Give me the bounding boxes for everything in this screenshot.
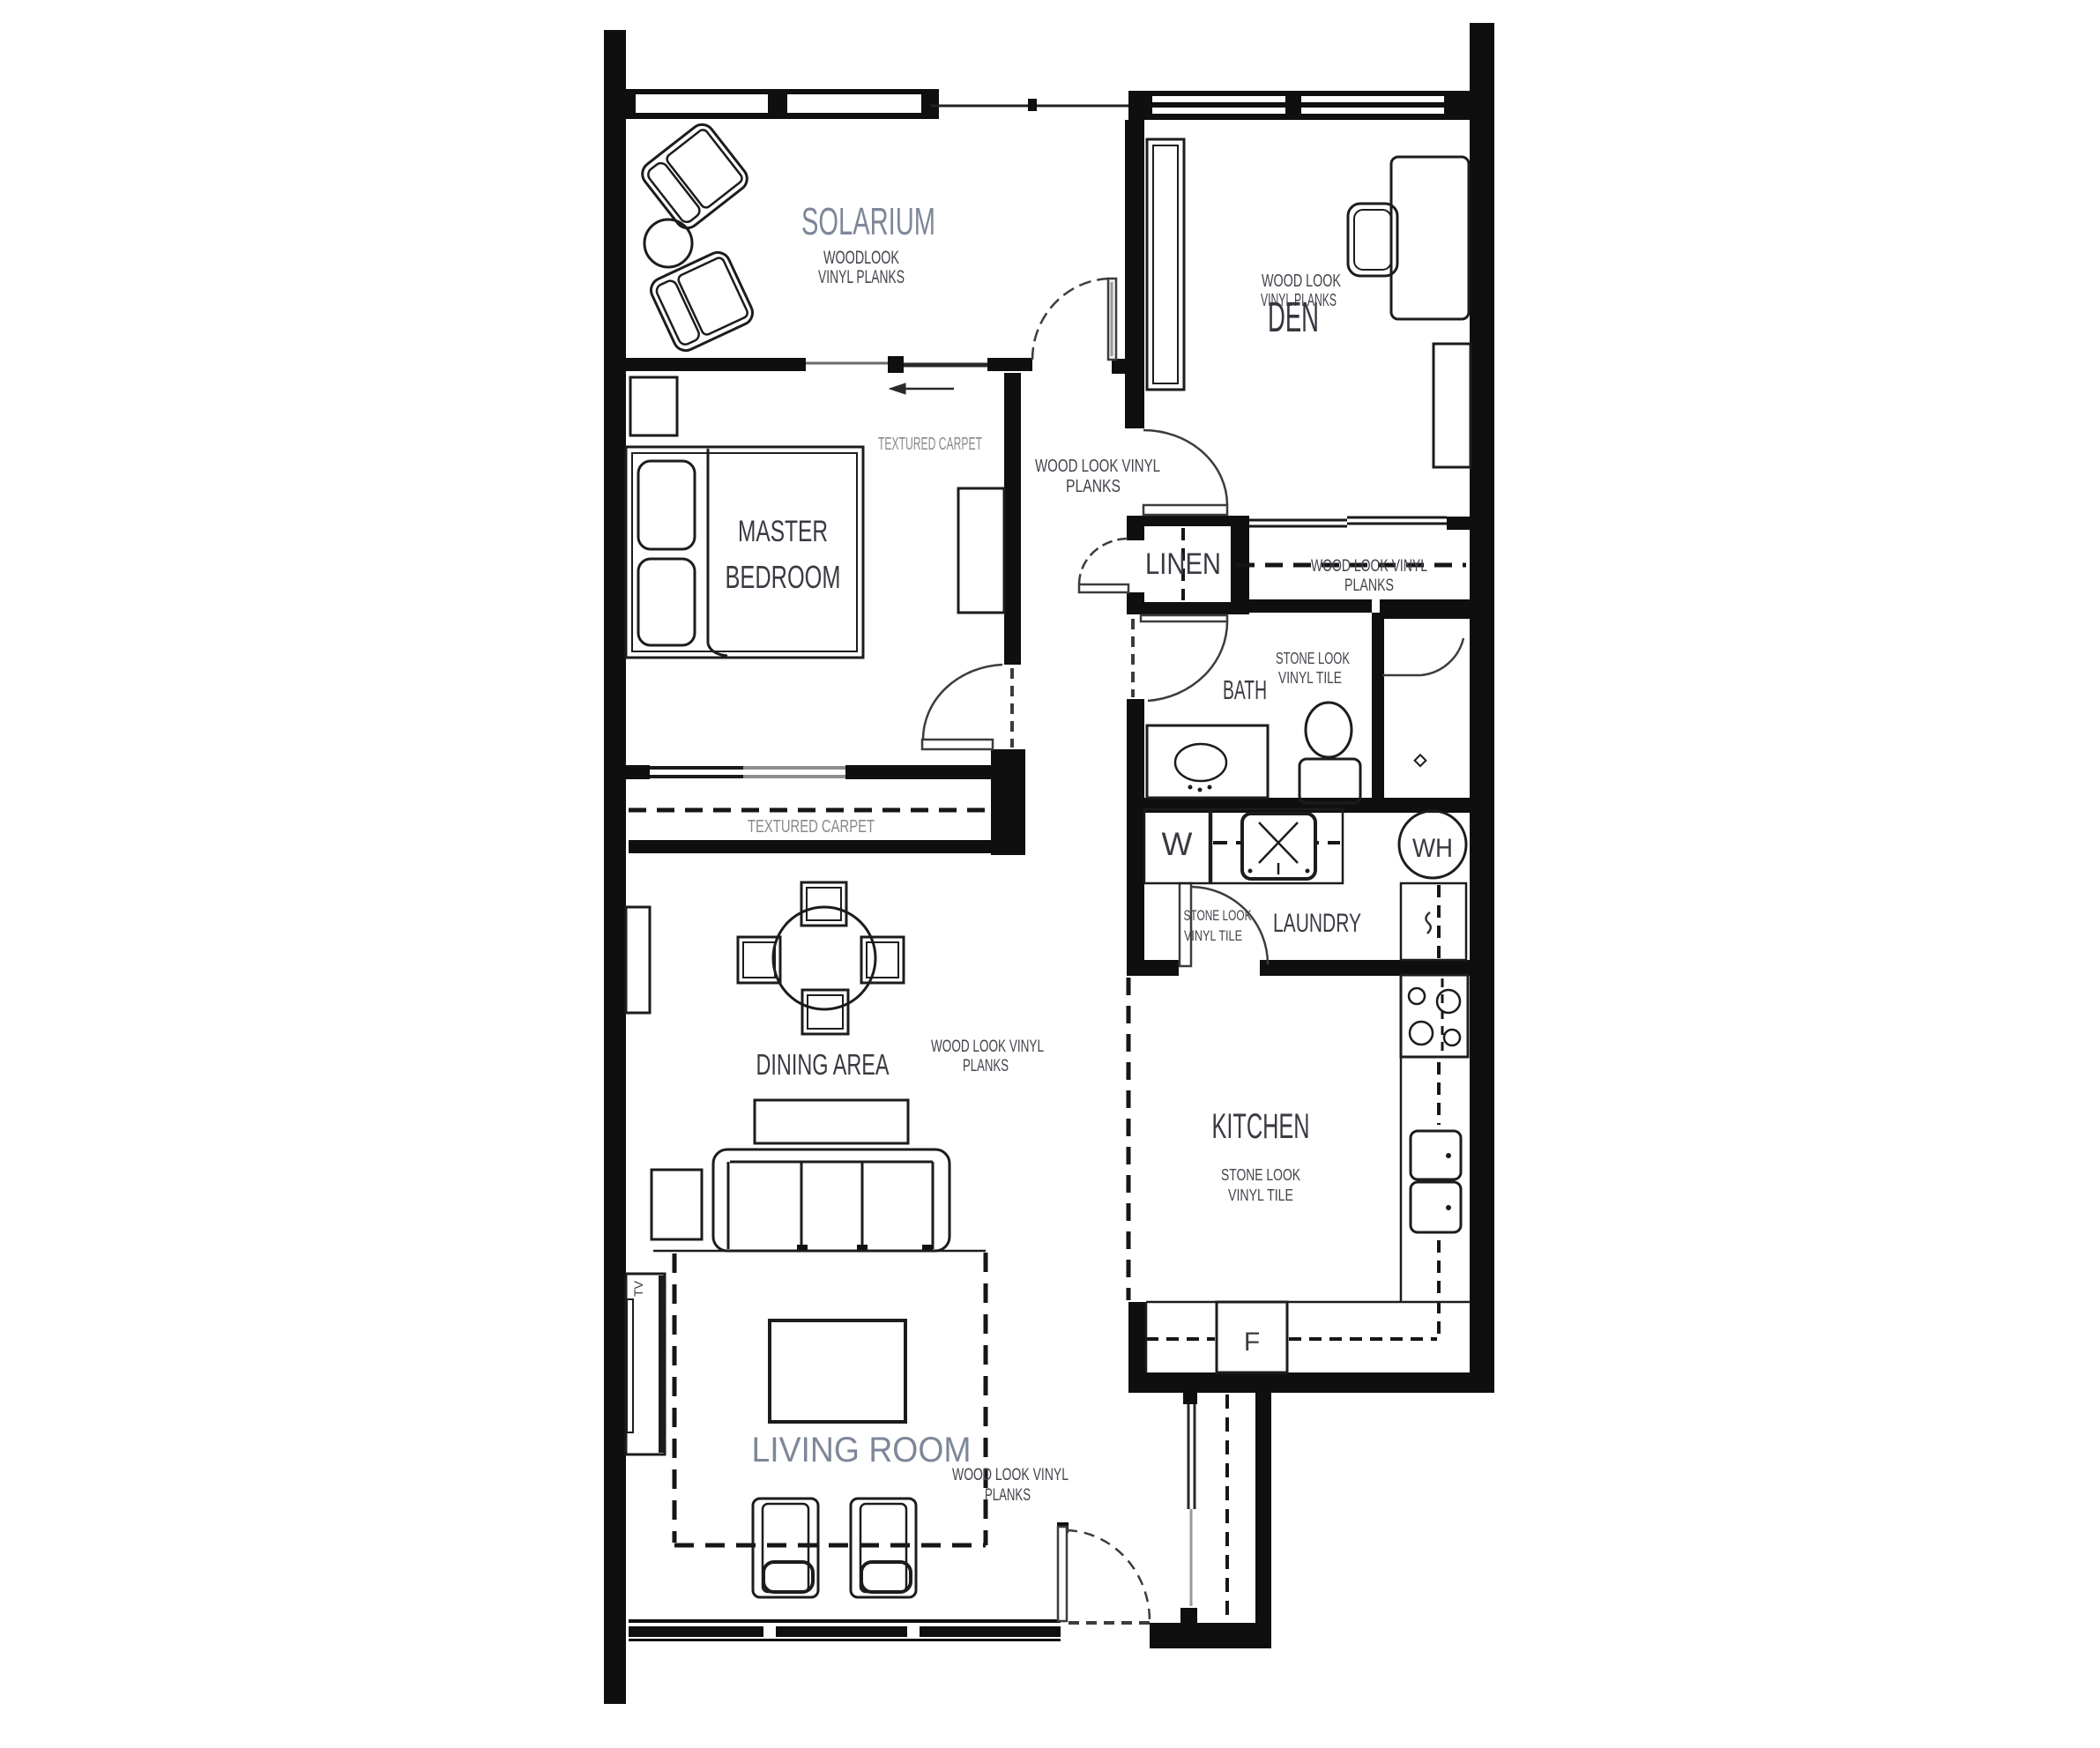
- svg-text:WOOD LOOK VINYL: WOOD LOOK VINYL: [952, 1466, 1069, 1484]
- svg-text:LAUNDRY: LAUNDRY: [1273, 909, 1361, 938]
- svg-text:WH: WH: [1412, 834, 1453, 863]
- svg-text:KITCHEN: KITCHEN: [1212, 1107, 1310, 1146]
- svg-text:PLANKS: PLANKS: [1344, 576, 1394, 595]
- svg-text:VINYL TILE: VINYL TILE: [1184, 927, 1242, 944]
- svg-text:VINYL TILE: VINYL TILE: [1278, 669, 1342, 687]
- svg-text:LIVING ROOM: LIVING ROOM: [752, 1431, 972, 1469]
- svg-text:LINEN: LINEN: [1145, 547, 1221, 581]
- svg-text:TV: TV: [631, 1280, 645, 1297]
- svg-text:PLANKS: PLANKS: [1066, 477, 1121, 496]
- svg-text:WOOD LOOK: WOOD LOOK: [1262, 271, 1341, 291]
- svg-text:STONE LOOK: STONE LOOK: [1276, 650, 1350, 667]
- svg-text:VINYL PLANKS: VINYL PLANKS: [818, 267, 905, 287]
- svg-text:W: W: [1162, 826, 1193, 862]
- svg-text:DINING AREA: DINING AREA: [756, 1048, 890, 1081]
- svg-text:WOODLOOK: WOODLOOK: [823, 248, 899, 268]
- svg-text:F: F: [1244, 1328, 1260, 1357]
- svg-text:TEXTURED CARPET: TEXTURED CARPET: [748, 817, 875, 837]
- svg-text:WOOD LOOK VINYL: WOOD LOOK VINYL: [1035, 457, 1160, 476]
- svg-text:WOOD LOOK VINYL: WOOD LOOK VINYL: [931, 1038, 1044, 1056]
- svg-text:PLANKS: PLANKS: [985, 1486, 1031, 1505]
- svg-text:TEXTURED CARPET: TEXTURED CARPET: [878, 435, 982, 454]
- svg-text:WOOD LOOK VINYL: WOOD LOOK VINYL: [1311, 557, 1427, 576]
- svg-text:BATH: BATH: [1223, 674, 1267, 705]
- svg-text:BEDROOM: BEDROOM: [726, 559, 841, 595]
- svg-text:VINYL TILE: VINYL TILE: [1228, 1186, 1293, 1204]
- svg-text:STONE LOOK: STONE LOOK: [1221, 1166, 1300, 1184]
- svg-text:DEN: DEN: [1268, 294, 1319, 341]
- svg-text:PLANKS: PLANKS: [963, 1057, 1009, 1075]
- svg-text:MASTER: MASTER: [738, 515, 828, 548]
- svg-text:SOLARIUM: SOLARIUM: [801, 200, 935, 243]
- svg-text:STONE LOOK: STONE LOOK: [1184, 907, 1252, 924]
